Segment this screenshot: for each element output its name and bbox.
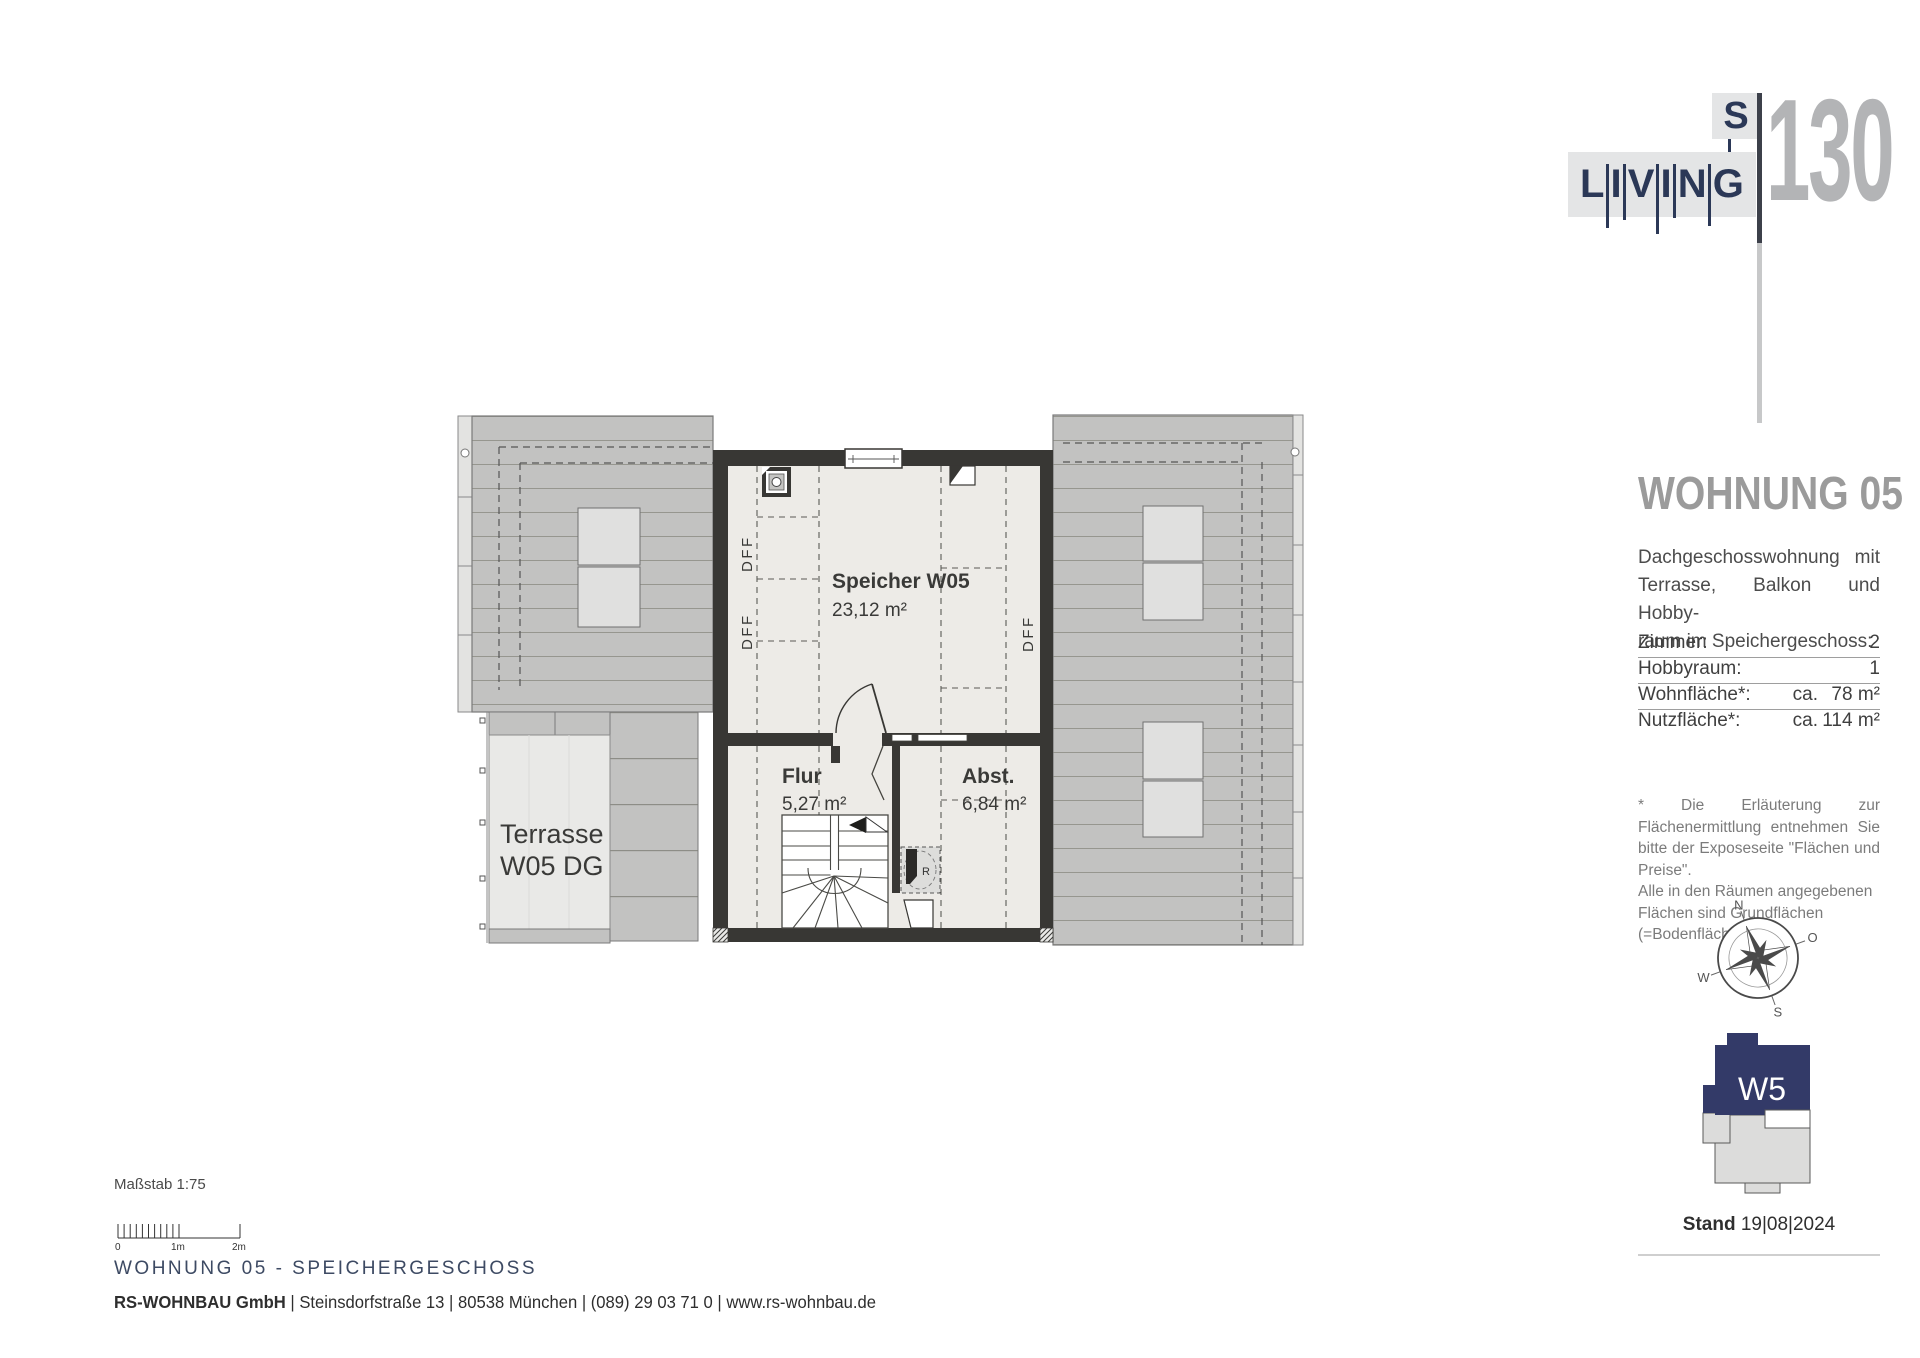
scale-bar: 0 1m 2m bbox=[115, 1224, 246, 1253]
footnote-paragraph: * Die Erläuterung zur Flächenermittlung … bbox=[1638, 795, 1880, 881]
logo-bar bbox=[1708, 164, 1711, 226]
dff-label: DFF bbox=[739, 535, 756, 572]
skylight bbox=[578, 508, 640, 565]
row-value: 78 m² bbox=[1818, 684, 1880, 706]
table-row: Zimmer: 2 bbox=[1638, 632, 1880, 658]
page: Terrasse W05 DG bbox=[0, 0, 1920, 1358]
installation-shaft: R bbox=[901, 847, 940, 893]
terrace-label-line2: W05 DG bbox=[500, 851, 604, 881]
table-row: Wohnfläche*: ca. 78 m² bbox=[1638, 684, 1880, 710]
logo-number: 130 bbox=[1766, 78, 1892, 223]
chimney bbox=[762, 467, 791, 497]
scale-tick-1m: 1m bbox=[171, 1242, 185, 1253]
room-name-flur: Flur bbox=[782, 765, 822, 788]
skylight bbox=[1143, 563, 1203, 620]
logo-bar bbox=[1606, 164, 1609, 228]
logo-s: S bbox=[1723, 95, 1748, 138]
compass-o: O bbox=[1807, 930, 1817, 945]
room-area-flur: 5,27 m² bbox=[782, 794, 846, 815]
shaft-label: R bbox=[922, 866, 930, 878]
wall-section-hatch bbox=[1040, 928, 1053, 942]
row-label: Nutzfläche*: bbox=[1638, 710, 1778, 732]
description-line: Dachgeschosswohnung mit bbox=[1638, 544, 1880, 572]
row-label: Hobbyraum: bbox=[1638, 658, 1778, 680]
logo-letter: V bbox=[1628, 160, 1655, 208]
building-locator-icon: W5 bbox=[1695, 1028, 1820, 1198]
compass-rose-icon: N O W S bbox=[1695, 895, 1825, 1025]
row-ca: ca. bbox=[1778, 710, 1818, 732]
skylight bbox=[1143, 722, 1203, 779]
table-row: Hobbyraum: 1 bbox=[1638, 658, 1880, 684]
right-roof bbox=[1053, 415, 1303, 945]
row-label: Zimmer: bbox=[1638, 632, 1778, 654]
scale-label: Maßstab 1:75 bbox=[114, 1176, 206, 1193]
row-ca: ca. bbox=[1778, 684, 1818, 706]
company-address-line: RS-WOHNBAU GmbH | Steinsdorfstraße 13 | … bbox=[114, 1292, 876, 1313]
wall-window-slot bbox=[918, 735, 967, 742]
skylight bbox=[1143, 506, 1203, 561]
row-label: Wohnfläche*: bbox=[1638, 684, 1778, 706]
skylight bbox=[1143, 781, 1203, 837]
room-name-speicher: Speicher W05 bbox=[832, 570, 970, 593]
row-value: 2 bbox=[1818, 632, 1880, 654]
company-name: RS-WOHNBAU GmbH bbox=[114, 1292, 286, 1312]
plan-headline: WOHNUNG 05 - SPEICHERGESCHOSS bbox=[114, 1258, 537, 1280]
stand-label: Stand bbox=[1683, 1214, 1736, 1235]
logo-bar bbox=[1623, 164, 1626, 220]
scale-tick-0: 0 bbox=[115, 1242, 121, 1253]
stand-value: 19|08|2024 bbox=[1741, 1214, 1835, 1235]
logo-divider bbox=[1757, 93, 1762, 243]
left-roof bbox=[458, 416, 713, 712]
living-s130-logo: S L I V I N G 130 bbox=[1568, 90, 1920, 240]
terrace-zone: Terrasse W05 DG bbox=[480, 712, 698, 943]
facts-table: Zimmer: 2 Hobbyraum: 1 Wohnfläche*: ca. … bbox=[1638, 632, 1880, 735]
logo-bar bbox=[1656, 164, 1659, 234]
dormer-window bbox=[845, 449, 902, 468]
room-name-abst: Abst. bbox=[962, 765, 1015, 788]
room-area-speicher: 23,12 m² bbox=[832, 600, 907, 621]
row-value: 1 bbox=[1818, 658, 1880, 680]
building-unit-label: W5 bbox=[1738, 1071, 1786, 1107]
stand-date: Stand 19|08|2024 bbox=[1638, 1214, 1880, 1236]
staircase bbox=[782, 815, 888, 928]
terrace-label-line1: Terrasse bbox=[500, 819, 604, 849]
roof-hatch-flap bbox=[950, 466, 975, 485]
logo-bar bbox=[1673, 164, 1676, 218]
description-line: Terrasse, Balkon und Hobby- bbox=[1638, 572, 1880, 628]
wall-window-slot bbox=[892, 735, 912, 742]
row-value: 114 m² bbox=[1818, 710, 1880, 732]
logo-letter: N bbox=[1678, 160, 1707, 208]
compass-w: W bbox=[1697, 970, 1710, 985]
compass-s: S bbox=[1774, 1005, 1783, 1020]
logo-letter: I bbox=[1611, 160, 1622, 208]
logo-letter: I bbox=[1661, 160, 1672, 208]
apartment-title: WOHNUNG 05 bbox=[1638, 466, 1844, 520]
room-area-abst: 6,84 m² bbox=[962, 794, 1026, 815]
table-row: Nutzfläche*: ca. 114 m² bbox=[1638, 710, 1880, 735]
wall-section-hatch bbox=[713, 928, 728, 942]
dff-label: DFF bbox=[1020, 615, 1037, 652]
apartment-unit: R bbox=[713, 449, 1053, 942]
logo-letter: G bbox=[1713, 160, 1744, 208]
logo-vertical-line bbox=[1757, 243, 1762, 423]
logo-living-box: L I V I N G bbox=[1568, 152, 1756, 217]
dff-label: DFF bbox=[739, 613, 756, 650]
company-details: | Steinsdorfstraße 13 | 80538 München | … bbox=[286, 1292, 876, 1312]
gutter-marker-icon bbox=[461, 449, 469, 457]
compass-n: N bbox=[1734, 897, 1743, 912]
balustrade-posts bbox=[480, 718, 485, 929]
scale-tick-2m: 2m bbox=[232, 1242, 246, 1253]
gutter-marker-icon bbox=[1291, 448, 1299, 456]
bottom-rule bbox=[1638, 1254, 1880, 1256]
logo-s-box: S bbox=[1712, 93, 1760, 139]
logo-letter: L bbox=[1580, 160, 1604, 208]
skylight bbox=[578, 567, 640, 627]
